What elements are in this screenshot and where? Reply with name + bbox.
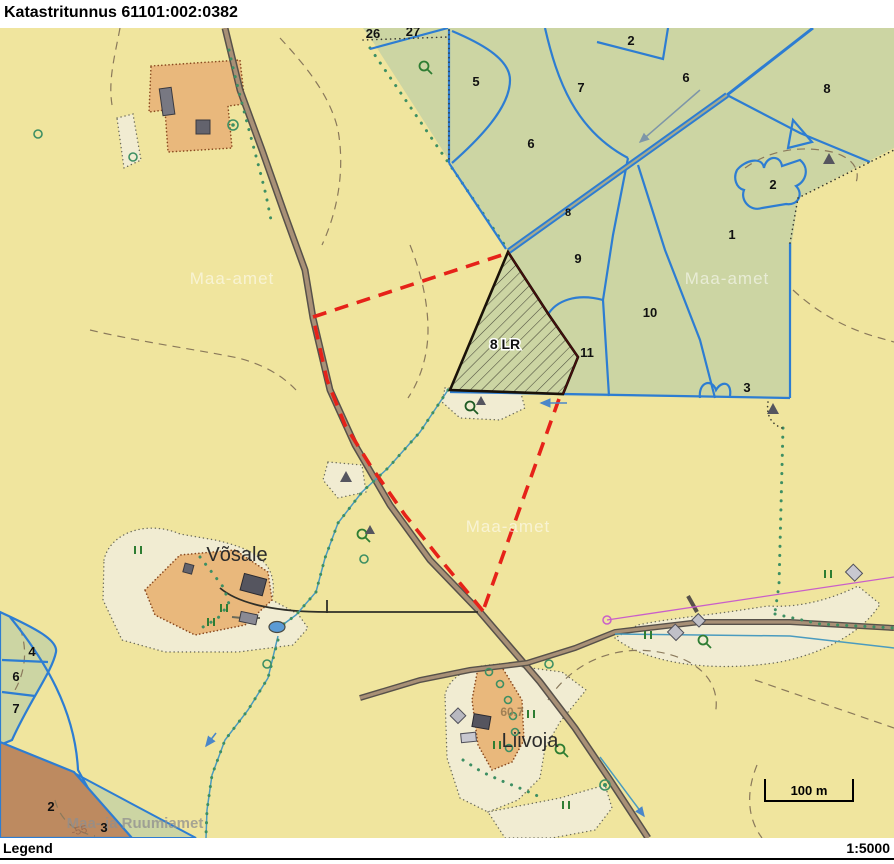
parcel-number: 4 <box>28 644 36 659</box>
scale-bar-label: 100 m <box>791 783 828 798</box>
map-canvas: Maa-amet Maa-amet Maa-amet Maa- ja Ruumi… <box>0 28 894 838</box>
place-name-liivoja: Liivoja <box>502 730 560 752</box>
parcel-number: 2 <box>47 799 54 814</box>
cadastral-map-page: Katastritunnus 61101:002:0382 <box>0 0 894 864</box>
footer-bar: Legend 1:5000 <box>0 838 894 864</box>
parcel-number: 6 <box>682 70 689 85</box>
watermark: Maa-amet <box>685 269 770 288</box>
parcel-number: 8 <box>823 81 830 96</box>
parcel-number: 7 <box>577 80 584 95</box>
parcel-number: 7 <box>12 701 19 716</box>
parcel-number: 3 <box>100 820 107 835</box>
footer-rule <box>0 858 894 860</box>
parcel-number: 11 <box>580 345 594 360</box>
parcel-number: 5 <box>472 74 479 89</box>
parcel-number: 1 <box>728 227 735 242</box>
legend-label: Legend <box>3 840 53 856</box>
parcel-number: 8 <box>565 207 571 219</box>
parcel-number: 10 <box>643 305 657 320</box>
parcel-number: 6 <box>12 669 19 684</box>
place-name-vosale: Võsale <box>206 544 267 566</box>
target-parcel-label: 8 LR <box>490 336 520 352</box>
watermark: Maa-amet <box>190 269 275 288</box>
watermark: Maa-amet <box>466 517 551 536</box>
parcel-number: 3 <box>743 380 750 395</box>
page-title: Katastritunnus 61101:002:0382 <box>4 4 238 22</box>
parcel-number: 6 <box>527 136 534 151</box>
contour-elevation-label: -55 <box>70 824 88 838</box>
map-scale-label: 1:5000 <box>846 840 890 856</box>
parcel-number: 2 <box>627 33 634 48</box>
parcel-number: 2 <box>769 177 776 192</box>
parcel-number: 27 <box>406 28 420 39</box>
map-svg: Maa-amet Maa-amet Maa-amet Maa- ja Ruumi… <box>0 28 894 838</box>
parcel-number: 9 <box>574 251 581 266</box>
parcel-number: 26 <box>366 28 380 41</box>
spot-elevation-label: 60.7 <box>500 705 524 719</box>
